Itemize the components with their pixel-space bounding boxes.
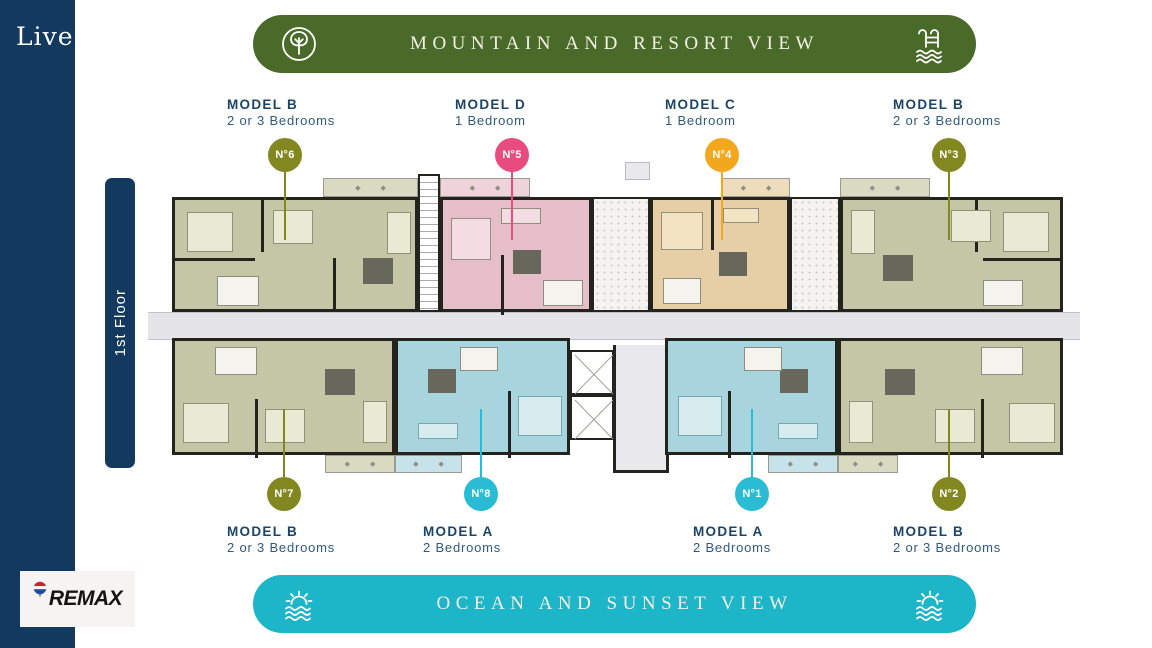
remax-logo: REMAX [20, 571, 135, 627]
remax-wordmark: REMAX [49, 587, 122, 611]
unit-label: MODEL A 2 Bedrooms [693, 524, 771, 555]
bed [661, 212, 703, 250]
entrance-lobby [613, 345, 669, 473]
unit-badge-n4[interactable]: N°4 [705, 138, 739, 172]
table [325, 369, 355, 395]
wall [711, 200, 714, 250]
stairwell [418, 174, 440, 312]
bathroom [543, 280, 583, 306]
unit-n8[interactable] [395, 338, 570, 455]
remax-balloon-icon [33, 581, 47, 602]
unit-label: MODEL C 1 Bedroom [665, 97, 736, 128]
ocean-view-banner: OCEAN AND SUNSET VIEW [253, 575, 976, 633]
sunset-waves-icon [279, 584, 319, 624]
bed [265, 409, 305, 443]
badge-stem [721, 172, 723, 240]
badge-stem [948, 409, 950, 477]
bed [951, 210, 991, 242]
unit-badge-n3[interactable]: N°3 [932, 138, 966, 172]
stair-core [592, 197, 650, 312]
balcony [768, 455, 838, 473]
unit-badge-n6[interactable]: N°6 [268, 138, 302, 172]
live-logo: Live [16, 22, 74, 51]
wall [508, 391, 511, 458]
balcony [840, 178, 930, 197]
table [428, 369, 456, 393]
table [885, 369, 915, 395]
unit-label: MODEL B 2 or 3 Bedrooms [227, 97, 335, 128]
model-name: MODEL A [693, 524, 771, 540]
bed [518, 396, 562, 436]
bedroom-count: 1 Bedroom [665, 113, 736, 128]
unit-label: MODEL A 2 Bedrooms [423, 524, 501, 555]
model-name: MODEL B [227, 524, 335, 540]
bedroom-count: 2 or 3 Bedrooms [227, 113, 335, 128]
sofa [723, 208, 759, 223]
unit-label: MODEL D 1 Bedroom [455, 97, 526, 128]
balcony [722, 178, 790, 197]
bedroom-count: 2 or 3 Bedrooms [227, 540, 335, 555]
sofa [418, 423, 458, 439]
sofa [387, 212, 411, 254]
badge-stem [480, 409, 482, 477]
model-name: MODEL A [423, 524, 501, 540]
bedroom-count: 2 Bedrooms [693, 540, 771, 555]
sofa [849, 401, 873, 443]
bedroom-count: 2 Bedrooms [423, 540, 501, 555]
bedroom-count: 2 or 3 Bedrooms [893, 113, 1001, 128]
bedroom-count: 1 Bedroom [455, 113, 526, 128]
bathroom [663, 278, 701, 304]
badge-stem [284, 172, 286, 240]
model-name: MODEL C [665, 97, 736, 113]
balcony [440, 178, 530, 197]
floor-indicator: 1st Floor [105, 178, 135, 468]
bed [678, 396, 722, 436]
stair-core [790, 197, 840, 312]
unit-label: MODEL B 2 or 3 Bedrooms [893, 97, 1001, 128]
bed [187, 212, 233, 252]
unit-badge-n1[interactable]: N°1 [735, 477, 769, 511]
table [883, 255, 913, 281]
wall [728, 391, 731, 458]
bedroom-count: 2 or 3 Bedrooms [893, 540, 1001, 555]
table [780, 369, 808, 393]
sidebar: Live [0, 0, 75, 648]
corridor [148, 312, 1080, 340]
balcony [395, 455, 462, 473]
badge-stem [948, 172, 950, 240]
floor-indicator-label: 1st Floor [112, 289, 129, 356]
model-name: MODEL B [893, 97, 1001, 113]
mountain-view-banner: MOUNTAIN AND RESORT VIEW [253, 15, 976, 73]
table [513, 250, 541, 274]
table [363, 258, 393, 284]
sofa [778, 423, 818, 439]
unit-n6[interactable] [172, 197, 418, 312]
top-banner-text: MOUNTAIN AND RESORT VIEW [319, 33, 910, 55]
wall [261, 200, 264, 252]
wall [333, 258, 336, 312]
unit-badge-n8[interactable]: N°8 [464, 477, 498, 511]
sofa [363, 401, 387, 443]
balcony [325, 455, 395, 473]
unit-label: MODEL B 2 or 3 Bedrooms [893, 524, 1001, 555]
unit-n5[interactable] [440, 197, 592, 312]
bathroom [460, 347, 498, 371]
sunset-waves-icon [910, 584, 950, 624]
bed [273, 210, 313, 244]
sofa [851, 210, 875, 254]
unit-badge-n5[interactable]: N°5 [495, 138, 529, 172]
unit-badge-n2[interactable]: N°2 [932, 477, 966, 511]
roof-stub [625, 162, 650, 180]
unit-label: MODEL B 2 or 3 Bedrooms [227, 524, 335, 555]
balcony [323, 178, 418, 197]
balcony [838, 455, 898, 473]
bathroom [981, 347, 1023, 375]
bed [183, 403, 229, 443]
sofa [501, 208, 541, 224]
elevator-shaft [570, 350, 614, 395]
badge-stem [283, 409, 285, 477]
wall [255, 399, 258, 458]
model-name: MODEL B [227, 97, 335, 113]
bed [451, 218, 491, 260]
bottom-banner-text: OCEAN AND SUNSET VIEW [319, 593, 910, 615]
badge-stem [751, 409, 753, 477]
bed [1003, 212, 1049, 252]
bathroom [217, 276, 259, 306]
table [719, 252, 747, 276]
model-name: MODEL B [893, 524, 1001, 540]
bathroom [983, 280, 1023, 306]
badge-stem [511, 172, 513, 240]
wall [175, 258, 255, 261]
floor-plan [148, 170, 1080, 475]
wall [981, 399, 984, 458]
unit-badge-n7[interactable]: N°7 [267, 477, 301, 511]
tree-icon [279, 24, 319, 64]
unit-n4[interactable] [650, 197, 790, 312]
page: Live 1st Floor MOUNTAIN AND RESORT VIEW [0, 0, 1152, 648]
bathroom [215, 347, 257, 375]
bed [935, 409, 975, 443]
pool-ladder-icon [910, 24, 950, 64]
wall [983, 258, 1063, 261]
elevator-shaft [570, 395, 614, 440]
bathroom [744, 347, 782, 371]
model-name: MODEL D [455, 97, 526, 113]
bed [1009, 403, 1055, 443]
unit-n2[interactable] [838, 338, 1063, 455]
unit-n3[interactable] [840, 197, 1063, 312]
wall [501, 255, 504, 315]
